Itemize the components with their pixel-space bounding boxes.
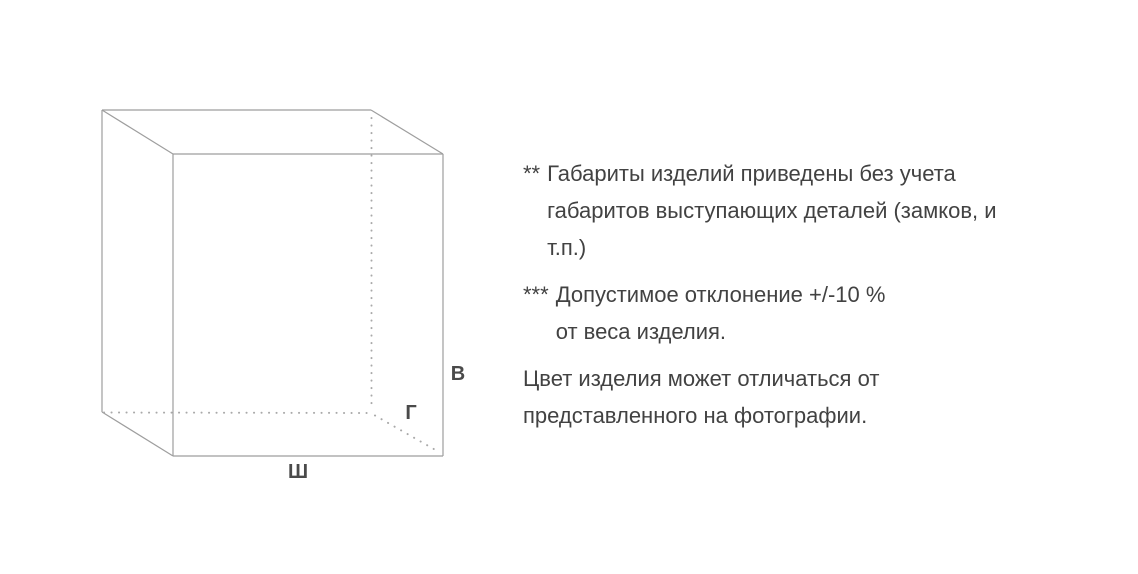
width-dimension-label: Ш [288, 461, 308, 483]
note-dimensions-text: Габариты изделий приведены без учета габ… [547, 155, 996, 266]
box-edge-back-bottom-hidden [104, 413, 371, 414]
box-edge-top-left-diagonal [102, 110, 173, 154]
box-dimensions-diagram: В Г Ш [0, 0, 500, 574]
note-weight-text: Допустимое отклонение +/-10 % от веса из… [556, 276, 886, 350]
depth-dimension-label: Г [405, 402, 416, 424]
box-edge-bottom-left-diagonal [102, 412, 173, 456]
color-disclaimer: Цвет изделия может отличаться от предста… [523, 360, 1123, 434]
note-marker-double-asterisk: ** [523, 155, 540, 192]
note-weight-tolerance: *** Допустимое отклонение +/-10 % от вес… [523, 276, 1123, 350]
height-dimension-label: В [451, 363, 465, 385]
notes-block: ** Габариты изделий приведены без учета … [523, 155, 1123, 434]
note-marker-triple-asterisk: *** [523, 276, 549, 313]
box-edge-top-right-diagonal [371, 110, 443, 154]
note-dimensions-disclaimer: ** Габариты изделий приведены без учета … [523, 155, 1123, 266]
